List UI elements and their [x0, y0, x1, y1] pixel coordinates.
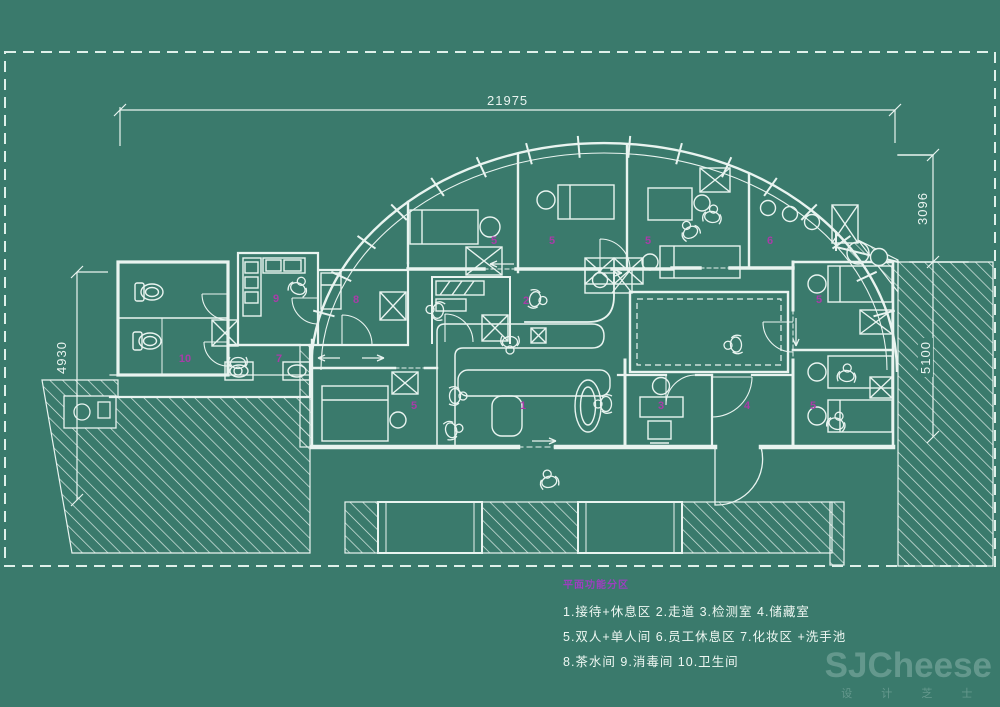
room-label-9: 9: [273, 293, 279, 305]
watermark-subtitle: 设 计 芝 士: [825, 685, 992, 701]
bottom-pier-hatch: [830, 502, 844, 565]
door-swings: [202, 239, 793, 417]
legend: 平面功能分区 1.接待+休息区 2.走道 3.检测室 4.储藏室 5.双人+单人…: [563, 576, 846, 675]
floor-plan-page: 21975 3096 5100 4930 1234555555678910 平面…: [0, 0, 1000, 707]
dimension-top-width: 21975: [487, 93, 528, 108]
room-label-5: 5: [491, 235, 497, 247]
legend-line-3: 8.茶水间 9.消毒间 10.卫生间: [563, 650, 846, 675]
room-label-1: 1: [520, 400, 526, 412]
room-label-5: 5: [645, 235, 651, 247]
bottom-band-hatch-2: [482, 502, 578, 553]
facade-mullion-ticks: [313, 136, 895, 316]
watermark-title: SJCheese: [825, 649, 992, 683]
room-label-3: 3: [658, 400, 664, 412]
right-ground-hatch: [898, 262, 993, 566]
room-label-5: 5: [810, 400, 816, 412]
room-label-6: 6: [767, 235, 773, 247]
room-label-2: 2: [523, 295, 529, 307]
legend-line-1: 1.接待+休息区 2.走道 3.检测室 4.储藏室: [563, 600, 846, 625]
hatched-wall-zones: [42, 240, 993, 566]
room-label-7: 7: [276, 353, 282, 365]
room-label-5: 5: [411, 400, 417, 412]
room-label-8: 8: [353, 294, 359, 306]
legend-line-2: 5.双人+单人间 6.员工休息区 7.化妆区 +洗手池: [563, 625, 846, 650]
room-label-10: 10: [179, 353, 191, 365]
bottom-band-hatch-1: [345, 502, 378, 553]
room-label-4: 4: [744, 400, 750, 412]
legend-title: 平面功能分区: [563, 576, 846, 591]
bottom-band-hatch-3: [682, 502, 832, 553]
room-label-5: 5: [816, 294, 822, 306]
dimension-right-upper: 3096: [915, 192, 930, 225]
dimension-left-height: 4930: [54, 341, 69, 374]
exterior-basin: [64, 396, 116, 428]
room-label-5: 5: [549, 235, 555, 247]
watermark: SJCheese 设 计 芝 士: [825, 649, 992, 701]
dimension-right-lower: 5100: [918, 338, 933, 377]
